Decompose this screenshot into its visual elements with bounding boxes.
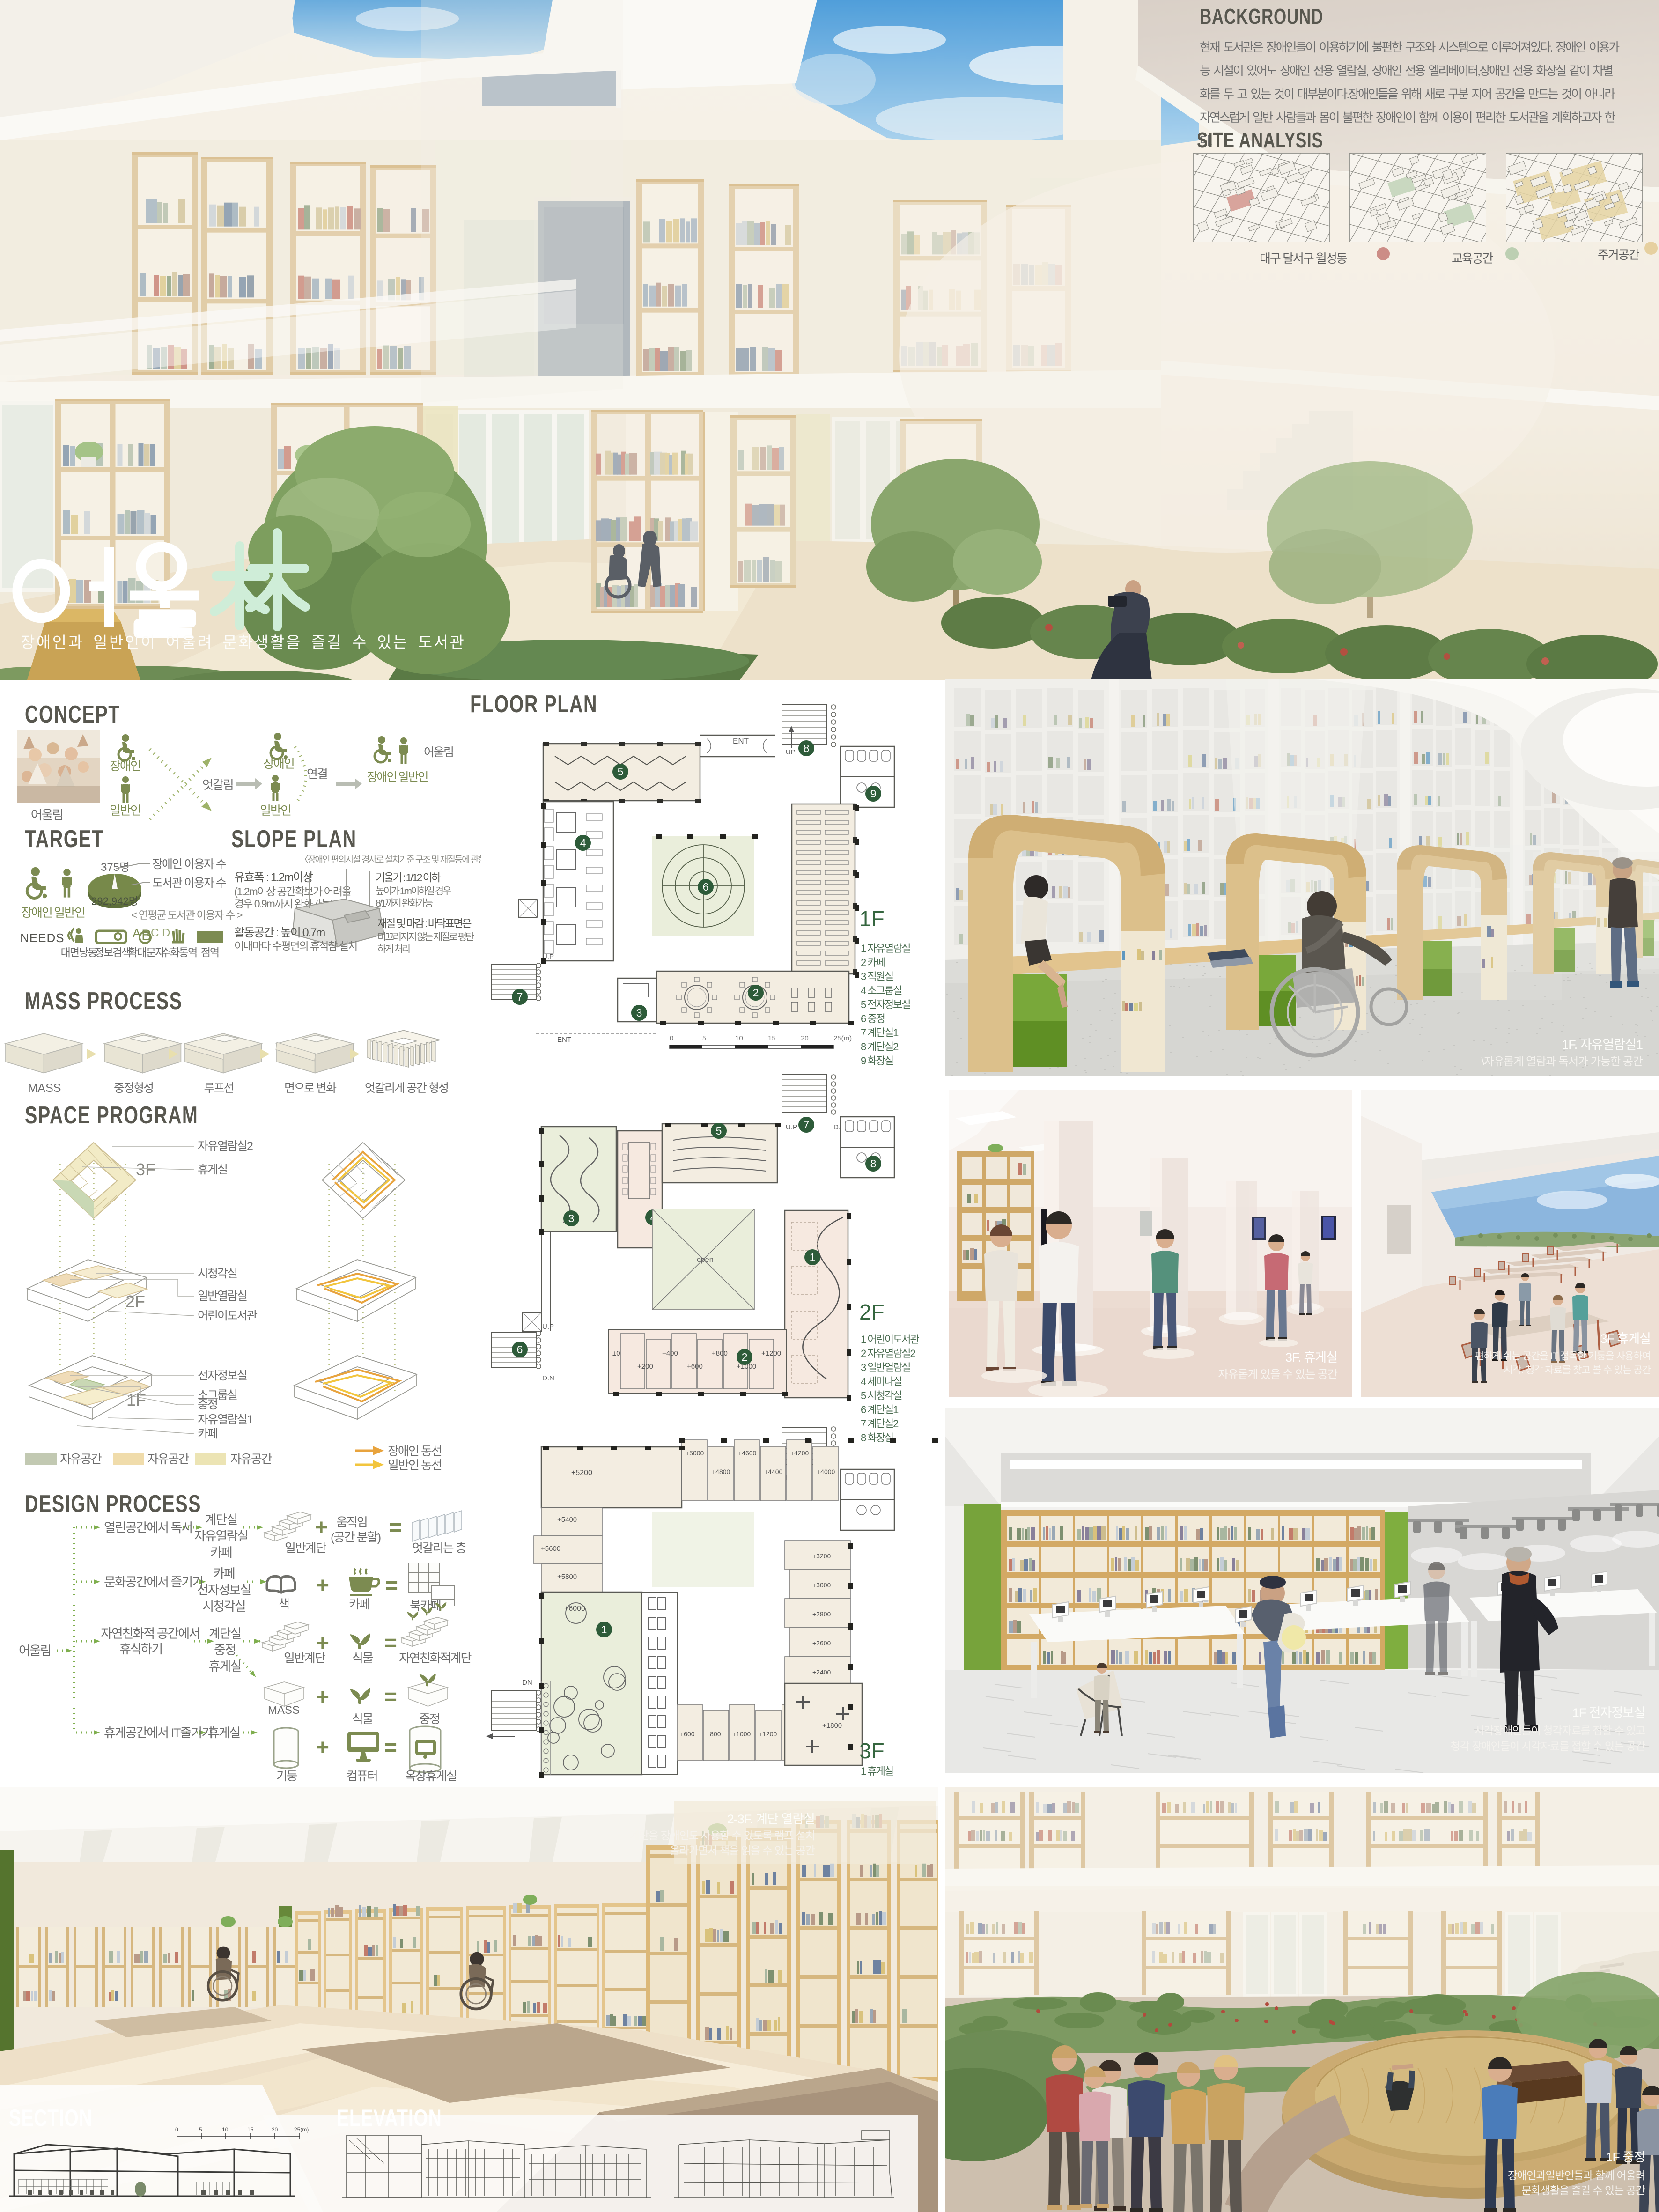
svg-text:장애인 동선: 장애인 동선 [388,1444,442,1458]
svg-text:책: 책 [279,1597,289,1611]
svg-text:어린이도서관: 어린이도서관 [198,1309,258,1322]
svg-text:휴게실: 휴게실 [208,1726,240,1740]
svg-text:대면낭동: 대면낭동 [61,946,97,959]
svg-text:1F. 자유열람실1: 1F. 자유열람실1 [1562,1038,1643,1052]
svg-text:일반인: 일반인 [110,804,140,818]
svg-text:계단실: 계단실 [209,1627,241,1641]
svg-text:카페: 카페 [210,1546,232,1560]
svg-text:0: 0 [175,2126,178,2133]
svg-text:어울림: 어울림 [19,1644,51,1658]
svg-text:수화통역: 수화통역 [161,946,197,959]
svg-text:연결: 연결 [307,767,327,781]
svg-text:20: 20 [272,2126,278,2133]
svg-text:=: = [389,1515,402,1540]
svg-text:장애인과일반인들과 함께 어울려: 장애인과일반인들과 함께 어울려 [1508,2169,1645,2182]
svg-text:휴게실: 휴게실 [209,1659,241,1674]
svg-text:일반계단: 일반계단 [285,1541,327,1555]
svg-text:자유공간: 자유공간 [230,1452,272,1466]
svg-text:유효폭 : 1.2m이상: 유효폭 : 1.2m이상 [234,871,313,884]
svg-text:기둥: 기둥 [276,1769,297,1783]
svg-text:일반인: 일반인 [54,906,85,920]
svg-text:움직임: 움직임 [336,1515,367,1529]
svg-text:확대문자: 확대문자 [128,946,165,959]
svg-text:1F 전자정보실: 1F 전자정보실 [1572,1706,1645,1720]
svg-text:장애인: 장애인 [263,757,294,771]
svg-text:중정형성: 중정형성 [114,1082,153,1095]
svg-text:식물: 식물 [352,1712,373,1726]
svg-text:이내마다 수평면의 휴식참 설치: 이내마다 수평면의 휴식참 설치 [234,940,357,952]
svg-text:문화공간에서 즐기기: 문화공간에서 즐기기 [104,1575,203,1589]
svg-text:1F: 1F [126,1390,146,1409]
svg-text:10: 10 [222,2126,229,2133]
svg-text:=: = [385,1573,398,1598]
svg-text:열린공간에서 독서: 열린공간에서 독서 [104,1521,192,1535]
svg-text:계단을 장애인도 사용할 수 있도록 램프 설치: 계단을 장애인도 사용할 수 있도록 램프 설치 [630,1829,815,1842]
svg-text:휴게실: 휴게실 [198,1163,227,1176]
svg-text:MASS: MASS [28,1082,61,1095]
svg-text:휴게공간에서 IT즐기기: 휴게공간에서 IT즐기기 [104,1726,212,1740]
svg-text:자유공간: 자유공간 [60,1452,102,1466]
svg-text:장애인 이용자 수: 장애인 이용자 수 [152,858,226,871]
svg-text:청각 장애인들이 시각자료를 접할 수 있는 공간: 청각 장애인들이 시각자료를 접할 수 있는 공간 [1451,1740,1645,1752]
svg-text:카페: 카페 [198,1427,217,1440]
svg-text:장애인: 장애인 [110,759,140,773]
svg-text:미끄러지지 않는 재질로 평탄: 미끄러지지 않는 재질로 평탄 [377,932,474,943]
svg-text:식물: 식물 [352,1651,373,1665]
svg-text:C D: C D [151,927,170,939]
svg-text:375명: 375명 [101,861,130,874]
svg-text:문화생활을 즐길 수 있는 공간: 문화생활을 즐길 수 있는 공간 [1522,2184,1645,2197]
svg-text:도서관 이용자 수: 도서관 이용자 수 [152,877,226,890]
svg-text:컴퓨터: 컴퓨터 [347,1769,377,1783]
svg-text:3F 휴게실: 3F 휴게실 [1600,1332,1651,1346]
svg-text:+: + [316,1631,329,1656]
svg-text:중정: 중정 [419,1712,440,1726]
svg-text:=: = [384,1735,397,1760]
svg-text:ELEVATION: ELEVATION [337,2104,442,2131]
svg-text:=: = [384,1631,397,1656]
svg-text:중정: 중정 [214,1643,236,1657]
svg-text:자유롭게 있을 수 있는 공간: 자유롭게 있을 수 있는 공간 [1218,1368,1337,1381]
svg-text:(1.2m이상 공간확보가 어려울: (1.2m이상 공간확보가 어려울 [234,885,351,898]
svg-text:재질 및 마감 : 바닥표면은: 재질 및 마감 : 바닥표면은 [377,917,471,929]
svg-text:자연친화적 공간에서: 자연친화적 공간에서 [101,1627,199,1641]
svg-text:활동공간 : 높이 0.7m: 활동공간 : 높이 0.7m [234,926,325,939]
svg-text:NEEDS: NEEDS [20,931,65,945]
svg-text:엇갈리게 공간 형성: 엇갈리게 공간 형성 [365,1082,448,1095]
svg-text:15: 15 [247,2126,254,2133]
svg-text:1F 중정: 1F 중정 [1606,2150,1645,2164]
svg-text:카페: 카페 [349,1597,369,1611]
svg-text:일반인: 일반인 [398,771,428,784]
svg-text:2F: 2F [125,1292,145,1311]
svg-text:5: 5 [199,2126,202,2133]
svg-text:높이가 1m이하일 경우: 높이가 1m이하일 경우 [376,886,451,897]
svg-text:일반열람실: 일반열람실 [198,1290,247,1303]
svg-text:자연친화적계단: 자연친화적계단 [399,1651,472,1665]
svg-text:옥상휴게실: 옥상휴게실 [405,1769,457,1783]
svg-text:올라가면서 책을 읽을 수 있는 공간: 올라가면서 책을 읽을 수 있는 공간 [670,1844,815,1857]
svg-text:면으로 변화: 면으로 변화 [284,1082,337,1095]
svg-text:25(m): 25(m) [294,2126,309,2133]
svg-text:292,942명: 292,942명 [91,895,138,907]
svg-text:+: + [316,1685,329,1710]
svg-text:2-3F. 계단 열람실: 2-3F. 계단 열람실 [727,1812,815,1826]
svg-text:장애인: 장애인 [21,906,52,920]
svg-text:+: + [315,1515,328,1540]
svg-text:어울림: 어울림 [31,808,63,822]
svg-text:시청각실: 시청각실 [202,1600,245,1614]
svg-text:자유열람실: 자유열람실 [194,1529,248,1543]
svg-text:어울림: 어울림 [424,746,453,759]
svg-text:엇갈리는 층: 엇갈리는 층 [412,1541,466,1555]
svg-text:휴식하기: 휴식하기 [119,1642,162,1656]
svg-text:카페: 카페 [213,1567,235,1581]
svg-text:전자정보실: 전자정보실 [198,1369,247,1382]
svg-text:+: + [316,1735,329,1760]
svg-text:장애인: 장애인 [367,771,396,784]
svg-text:점역: 점역 [201,946,219,959]
svg-text:\자유롭게 열람과 독서가 가능한 공간: \자유롭게 열람과 독서가 가능한 공간 [1481,1055,1643,1068]
svg-text:정보검색: 정보검색 [95,946,131,959]
svg-text:MASS: MASS [268,1704,300,1717]
svg-text:3F: 3F [136,1160,155,1179]
svg-text:(공간 분할): (공간 분할) [331,1530,381,1544]
svg-text:자유공간: 자유공간 [147,1452,189,1466]
svg-text:SECTION: SECTION [9,2104,93,2131]
svg-text:일반인 동선: 일반인 동선 [388,1458,442,1472]
svg-text:엇갈림: 엇갈림 [202,778,233,792]
svg-text:일반인: 일반인 [260,804,291,818]
svg-text:계단실: 계단실 [205,1513,237,1527]
svg-text:자유열람실1: 자유열람실1 [198,1413,253,1426]
svg-text:하게 처리: 하게 처리 [377,944,410,955]
svg-text:8/1까지 완화가능: 8/1까지 완화가능 [376,898,434,909]
svg-text:중정: 중정 [198,1398,217,1411]
svg-text:=: = [384,1685,397,1710]
svg-text:시청각실: 시청각실 [198,1267,237,1280]
svg-text:기울기 : 1/12 이하: 기울기 : 1/12 이하 [376,871,441,884]
svg-text:시각장애인들이 청각자료를 접할 수 있고: 시각장애인들이 청각자료를 접할 수 있고 [1475,1725,1645,1737]
svg-text:루프선: 루프선 [204,1082,233,1095]
svg-text:자유열람실2: 자유열람실2 [198,1140,253,1153]
svg-text:〈장애인 편의시설 경사로 설치기준 구조 및 재질등에: 〈장애인 편의시설 경사로 설치기준 구조 및 재질등에 관한 세부사항〉 [300,855,481,865]
svg-text:+: + [316,1573,329,1598]
svg-text:전자정보실: 전자정보실 [197,1583,251,1597]
svg-text:편하게 쉬는 공간을 IT 접목한 기둥을 사용하여: 편하게 쉬는 공간을 IT 접목한 기둥을 사용하여 [1475,1351,1651,1362]
svg-text:3F. 휴게실: 3F. 휴게실 [1285,1350,1337,1364]
svg-text:시각. 청각 자료를 찾고 볼 수 있는 공간: 시각. 청각 자료를 찾고 볼 수 있는 공간 [1504,1365,1651,1376]
